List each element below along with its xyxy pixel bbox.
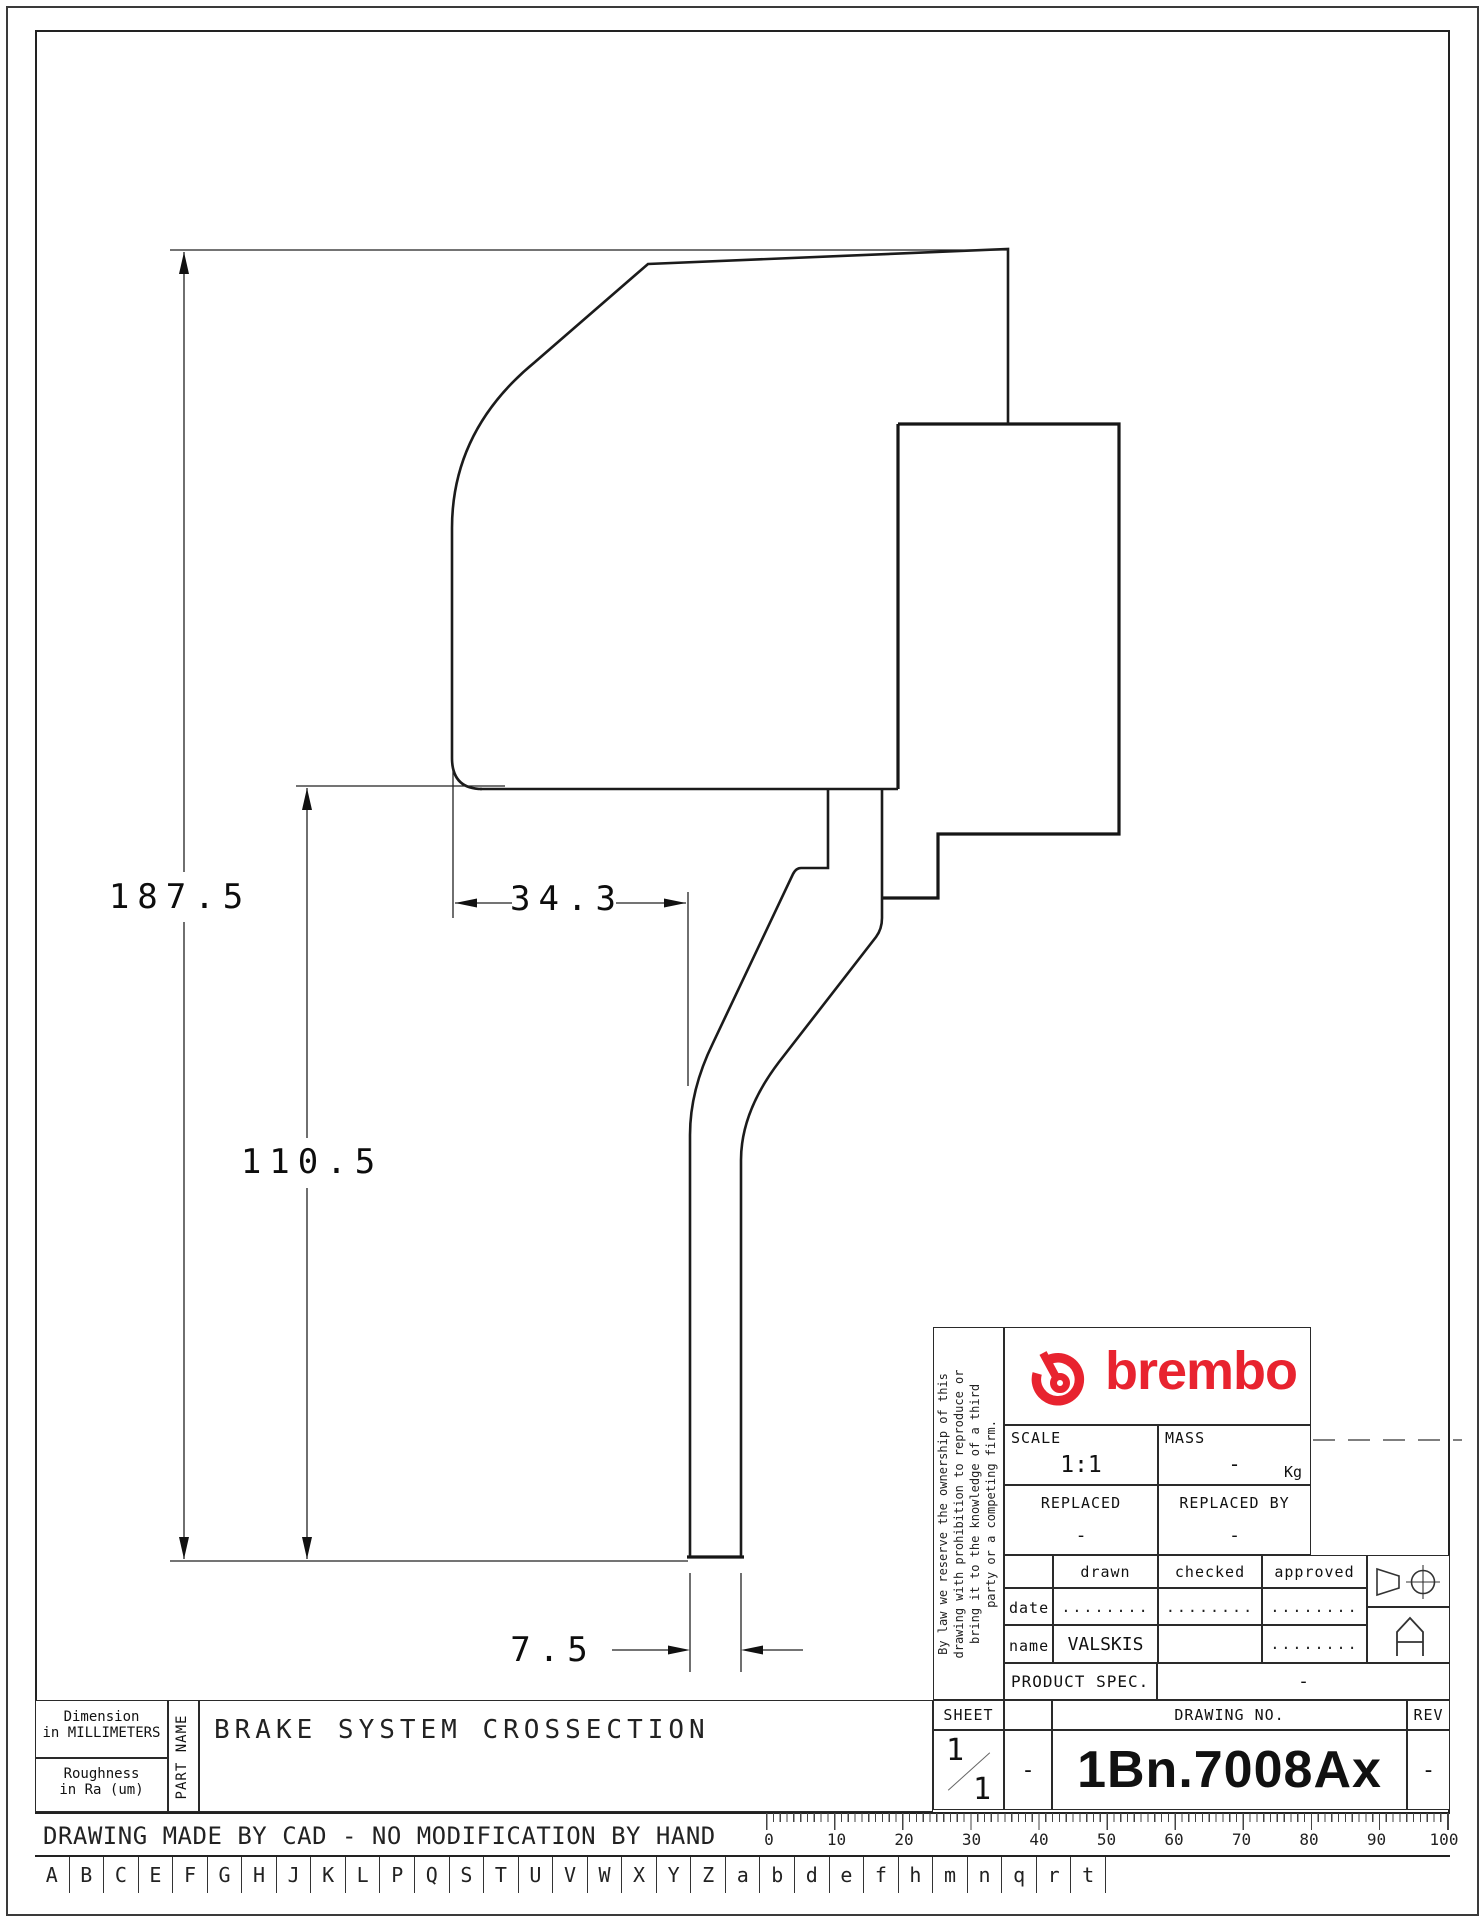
calibration-letter: m [933,1857,968,1893]
replaced-by-cell: REPLACED BY - [1158,1485,1311,1555]
format-symbol-cell [1367,1607,1450,1663]
ownership-text: By law we reserve the ownership of this … [935,1334,1001,1694]
ruler-mark: 80 [1289,1830,1329,1849]
ruler-mark: 10 [817,1830,857,1849]
date-label-text: date [1009,1599,1049,1617]
ruler-major-ticks [766,1813,1449,1830]
calibration-letter: T [484,1857,519,1893]
dash-header [1004,1700,1052,1730]
name-label-text: name [1009,1637,1049,1655]
calibration-letter: Y [657,1857,692,1893]
calibration-letter: J [277,1857,312,1893]
replaced-by-label: REPLACED BY [1159,1494,1310,1512]
brand-cell: brembo [1004,1327,1311,1425]
replaced-cell: REPLACED - [1004,1485,1158,1555]
mass-unit: Kg [1284,1463,1302,1481]
calibration-letter: F [173,1857,208,1893]
dimension-arrowheads [179,252,763,1655]
ruler-scale: 0102030405060708090100 [749,1830,1464,1849]
calibration-letter: E [139,1857,174,1893]
calibration-letter: L [346,1857,381,1893]
name-row-label: name [1004,1625,1053,1663]
product-spec-value: - [1157,1663,1450,1700]
ownership-column: By law we reserve the ownership of this … [933,1327,1004,1700]
sheet-header: SHEET [933,1700,1004,1730]
sheet-num: 1 [946,1733,964,1768]
calibration-letter: U [519,1857,554,1893]
first-angle-projection-icon [1368,1556,1451,1608]
calibration-letter: A [35,1857,70,1893]
ruler-mark: 90 [1357,1830,1397,1849]
calibration-letter: q [1002,1857,1037,1893]
calibration-letter: K [311,1857,346,1893]
calibration-letter: r [1037,1857,1072,1893]
projection-symbol-cell [1367,1555,1450,1607]
calibration-letter: V [553,1857,588,1893]
sheet-total: 1 [973,1772,991,1807]
rev-header: REV [1407,1700,1450,1730]
calibration-letter: B [70,1857,105,1893]
replaced-by-value: - [1159,1525,1310,1546]
calibration-letter: t [1071,1857,1106,1893]
calibration-letter: C [104,1857,139,1893]
ruler-mark: 0 [749,1830,789,1849]
roughness-line1: Roughness [36,1766,167,1782]
ruler-mark: 70 [1222,1830,1262,1849]
scale-cell: SCALE 1:1 [1004,1425,1158,1485]
scale-label: SCALE [1011,1429,1061,1447]
cad-note-text: DRAWING MADE BY CAD - NO MODIFICATION BY… [43,1822,716,1850]
calibration-letter: e [830,1857,865,1893]
calibration-letter: W [588,1857,623,1893]
replaced-label: REPLACED [1005,1494,1157,1512]
part-name-label: PART NAME [174,1698,194,1816]
dim-stem-width: 7.5 [495,1630,611,1670]
calibration-letter: Z [691,1857,726,1893]
ruler-mark: 50 [1087,1830,1127,1849]
dimension-note-cell: Dimension in MILLIMETERS [35,1700,168,1758]
sheet-value-cell: 1 1 [933,1730,1004,1810]
mass-label: MASS [1165,1429,1205,1447]
calibration-letter: S [450,1857,485,1893]
drawing-no-header: DRAWING NO. [1052,1700,1407,1730]
cad-drawing-sheet: 187.5 110.5 34.3 7.5 Dimension in MILLIM… [0,0,1483,1920]
replaced-value: - [1005,1525,1157,1546]
brand-wordmark: brembo [1105,1340,1305,1402]
calibration-letter: Q [415,1857,450,1893]
product-spec-cell: PRODUCT SPEC. [1004,1663,1157,1700]
dim-body-width: 34.3 [497,879,637,919]
roughness-line2: in Ra (um) [36,1782,167,1798]
part-title-cell: BRAKE SYSTEM CROSSECTION [199,1700,933,1812]
ruler-mark: 20 [884,1830,924,1849]
calibration-letter: n [968,1857,1003,1893]
dimension-lines [170,250,1008,1672]
roughness-note-cell: Roughness in Ra (um) [35,1758,168,1812]
part-name-column: PART NAME [168,1700,199,1812]
dash-value-cell: - [1004,1730,1052,1810]
calibration-letter: G [208,1857,243,1893]
dimension-note-line1: Dimension [36,1709,167,1725]
format-a-icon [1368,1608,1451,1664]
calibration-letter: h [899,1857,934,1893]
product-spec-label: PRODUCT SPEC. [1011,1672,1149,1691]
date-row-label: date [1004,1588,1053,1625]
date-approved: ........ [1262,1588,1367,1625]
dimension-note-line2: in MILLIMETERS [36,1725,167,1741]
scale-value: 1:1 [1005,1452,1157,1478]
dim-overall-height: 187.5 [90,877,270,917]
calibration-letter: a [726,1857,761,1893]
calibration-letter: d [795,1857,830,1893]
mass-cell: MASS - Kg [1158,1425,1311,1485]
approved-header: approved [1262,1555,1367,1588]
ruler-mark: 30 [952,1830,992,1849]
name-approved: ........ [1262,1625,1367,1663]
ruler-mark: 40 [1019,1830,1059,1849]
drawing-no-value: 1Bn.7008Ax [1052,1730,1407,1810]
dim-lower-height: 110.5 [222,1142,402,1182]
calibration-letter: f [864,1857,899,1893]
ruler-mark: 60 [1154,1830,1194,1849]
checked-header: checked [1158,1555,1262,1588]
part-title: BRAKE SYSTEM CROSSECTION [214,1715,710,1745]
calibration-letter: P [380,1857,415,1893]
name-drawn: VALSKIS [1053,1625,1158,1663]
name-checked [1158,1625,1262,1663]
date-drawn: ........ [1053,1588,1158,1625]
calibration-letter: b [760,1857,795,1893]
date-checked: ........ [1158,1588,1262,1625]
brembo-logo-icon [1013,1332,1105,1424]
rev-value: - [1407,1730,1450,1810]
calibration-letter: X [622,1857,657,1893]
ruler-mark: 100 [1424,1830,1464,1849]
sign-corner-cell [1004,1555,1053,1588]
calibration-letters-strip: ABCEFGHJKLPQSTUVWXYZabdefhmnqrt [35,1855,1450,1893]
drawn-header: drawn [1053,1555,1158,1588]
calibration-letter: H [242,1857,277,1893]
